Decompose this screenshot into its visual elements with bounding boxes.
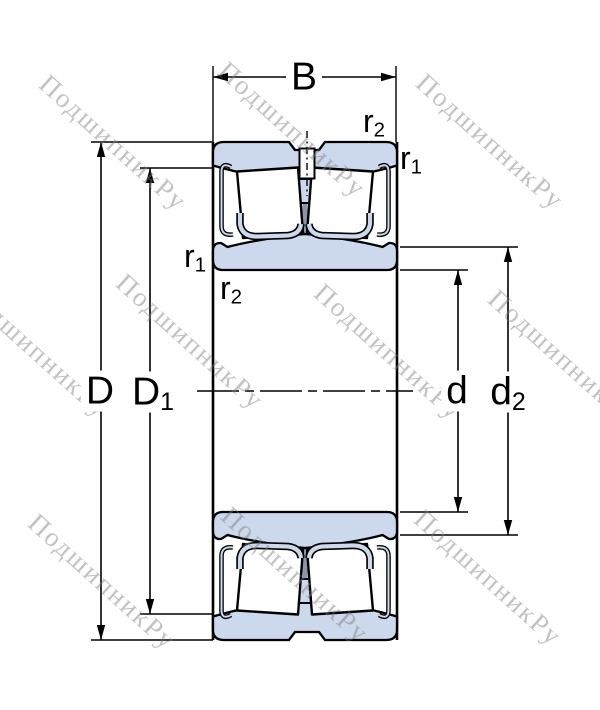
- dim-label-r2-left: r2: [220, 272, 242, 304]
- arrow-d-top: [454, 270, 462, 285]
- arrow-B-right: [381, 73, 396, 81]
- dim-label-D1: D1: [127, 372, 179, 413]
- dim-label-r1-left: r1: [184, 240, 206, 272]
- dim-label-r1-top: r1: [400, 142, 422, 174]
- arrow-d2-top: [504, 247, 512, 262]
- arrow-D-top: [97, 142, 105, 157]
- arrow-D1-top: [146, 168, 154, 183]
- dim-label-D: D: [81, 371, 119, 412]
- arrow-B-left: [213, 73, 228, 81]
- arrow-d-bottom: [454, 497, 462, 512]
- dim-label-d2: d2: [485, 372, 531, 413]
- arrow-D-bottom: [97, 625, 105, 640]
- arrow-D1-bottom: [146, 599, 154, 614]
- dim-label-d: d: [441, 371, 473, 412]
- dim-label-B: B: [286, 57, 322, 98]
- bearing-cross-section-drawing: [0, 0, 600, 710]
- bearing-section-bottom: [213, 512, 397, 640]
- technical-drawing-page: ПодшипникРу ПодшипникРу ПодшипникРу Подш…: [0, 0, 600, 710]
- dim-label-r2-top: r2: [363, 105, 385, 137]
- arrow-d2-bottom: [504, 520, 512, 535]
